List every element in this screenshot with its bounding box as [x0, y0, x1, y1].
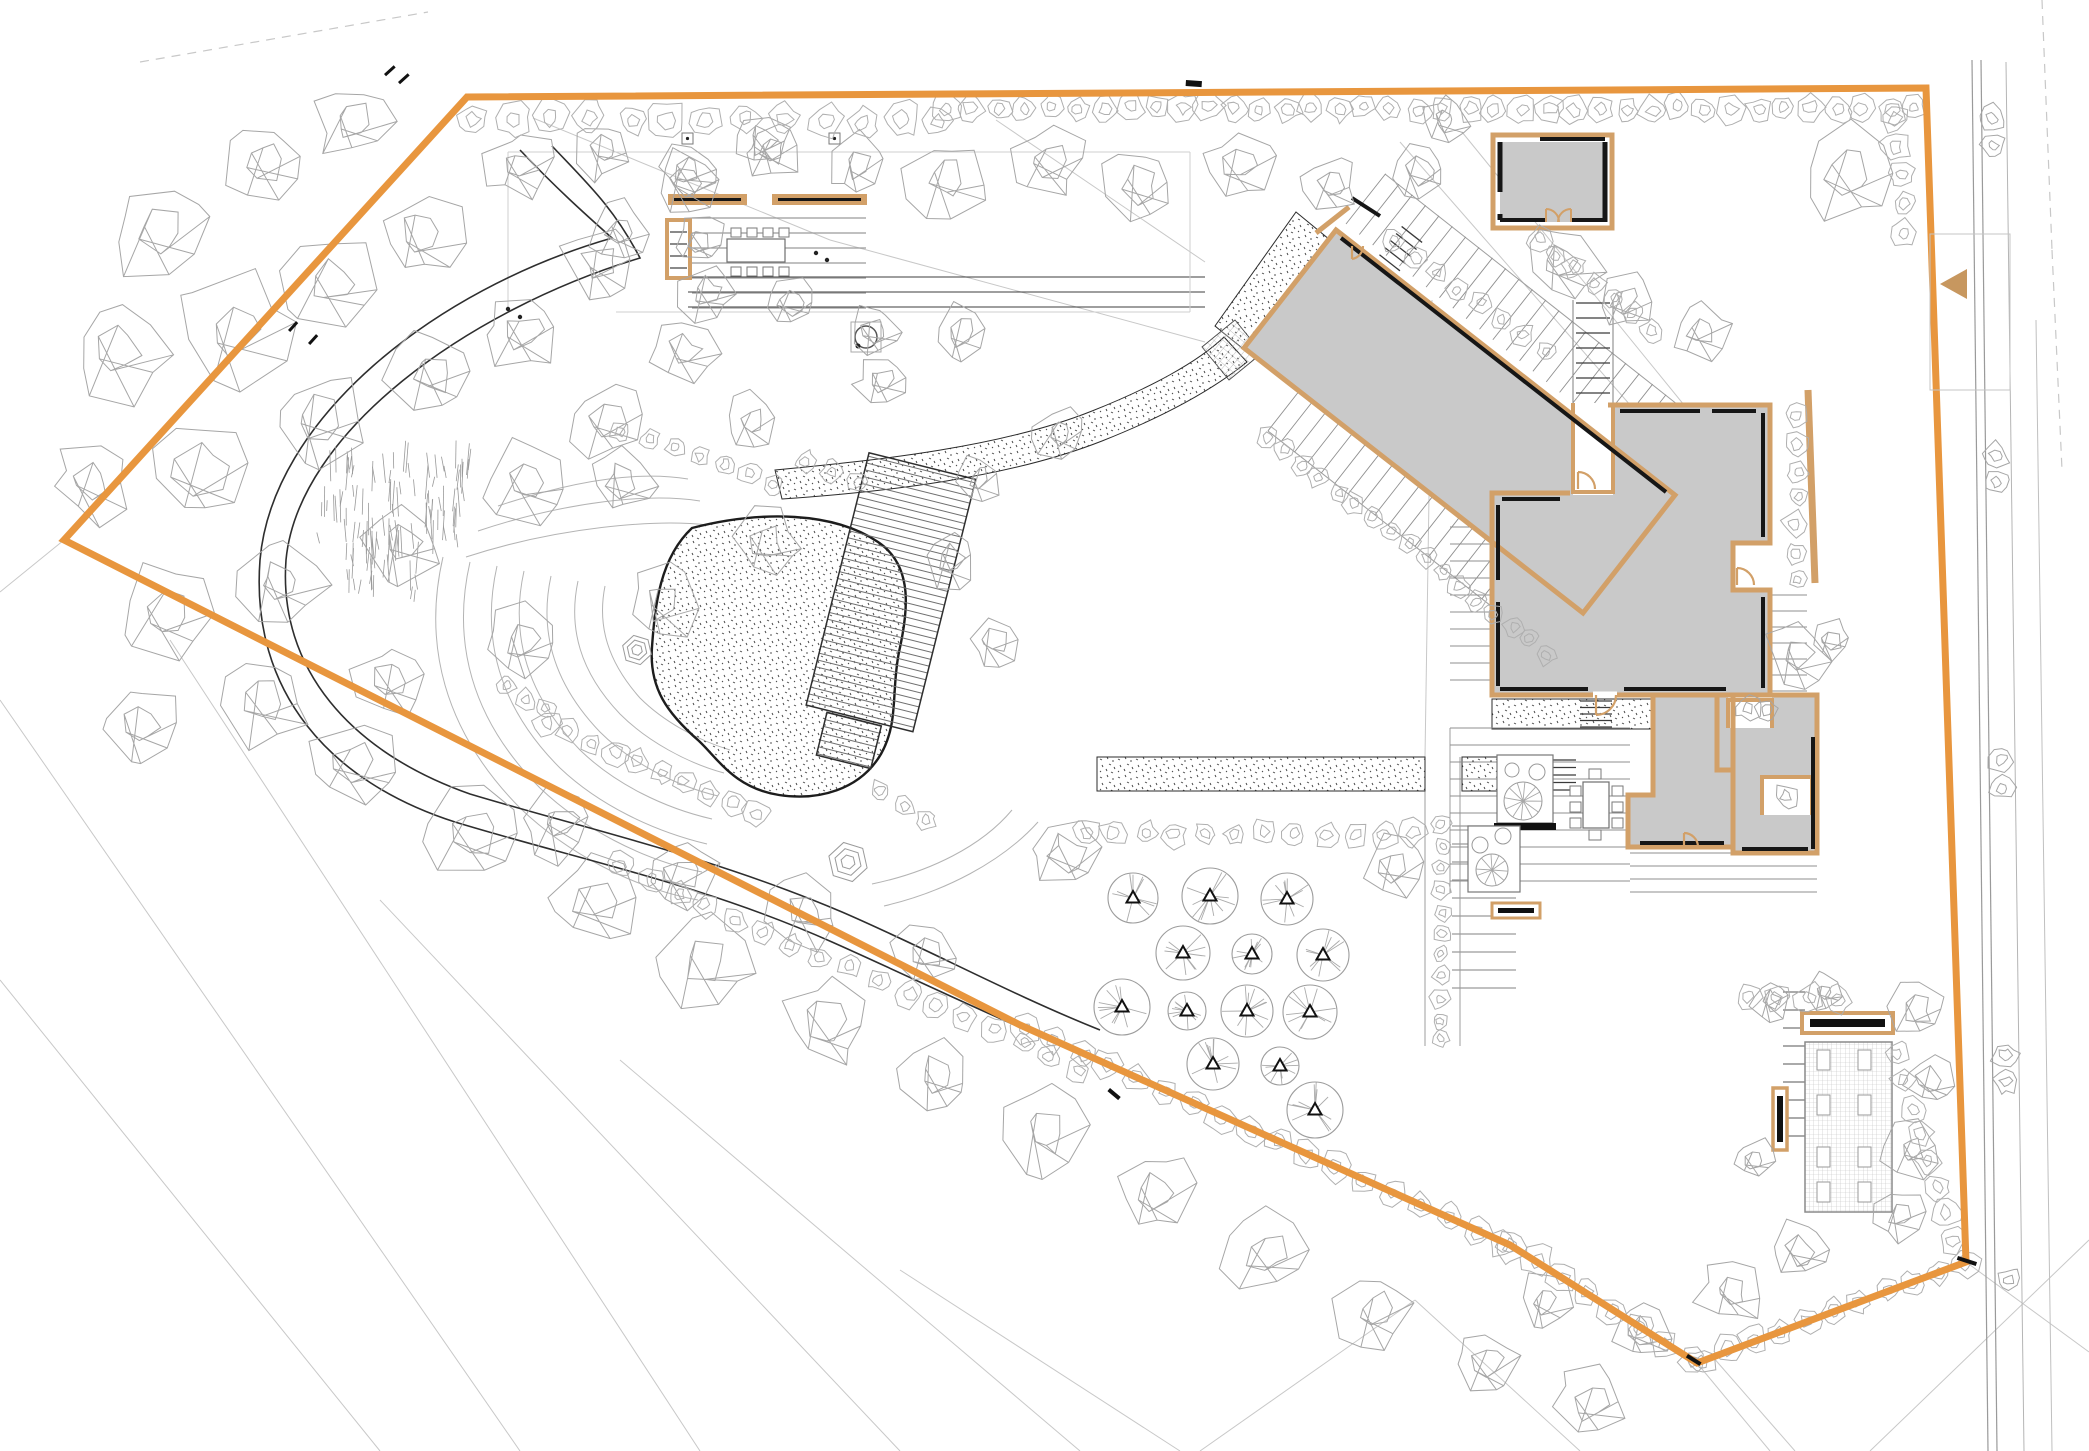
- north-arrow: [1930, 234, 2010, 390]
- orchard-trees: [1094, 868, 1349, 1138]
- site-plan-page: [0, 0, 2089, 1451]
- site-plan-drawing: [0, 0, 2089, 1451]
